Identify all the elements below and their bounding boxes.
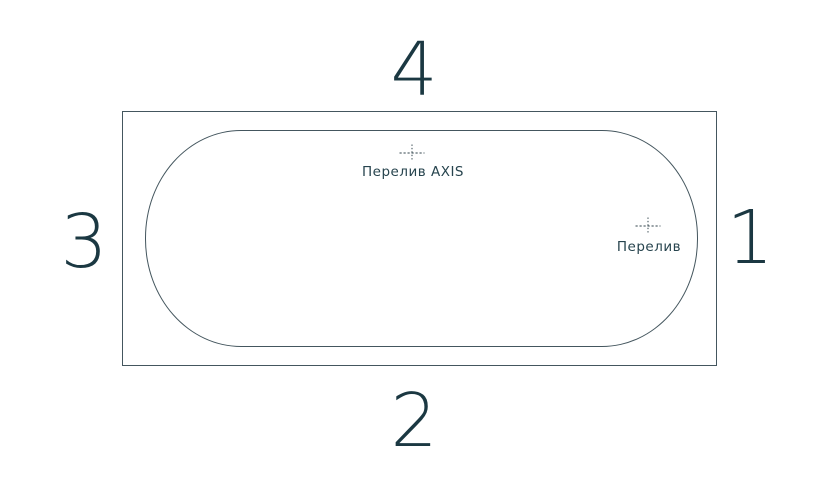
side-label-bottom: 2 [390, 384, 437, 458]
overflow-label: Перелив [617, 239, 681, 255]
overflow-crosshair-icon [635, 217, 661, 235]
side-label-right: 1 [726, 201, 773, 275]
tub-basin-outline [145, 130, 698, 347]
side-label-left: 3 [60, 205, 107, 279]
bathtub-diagram: 4 2 3 1 Перелив AXIS Перелив [0, 0, 828, 480]
side-label-top: 4 [390, 33, 437, 107]
overflow-axis-label: Перелив AXIS [362, 164, 464, 180]
overflow-axis-crosshair-icon [399, 144, 425, 162]
